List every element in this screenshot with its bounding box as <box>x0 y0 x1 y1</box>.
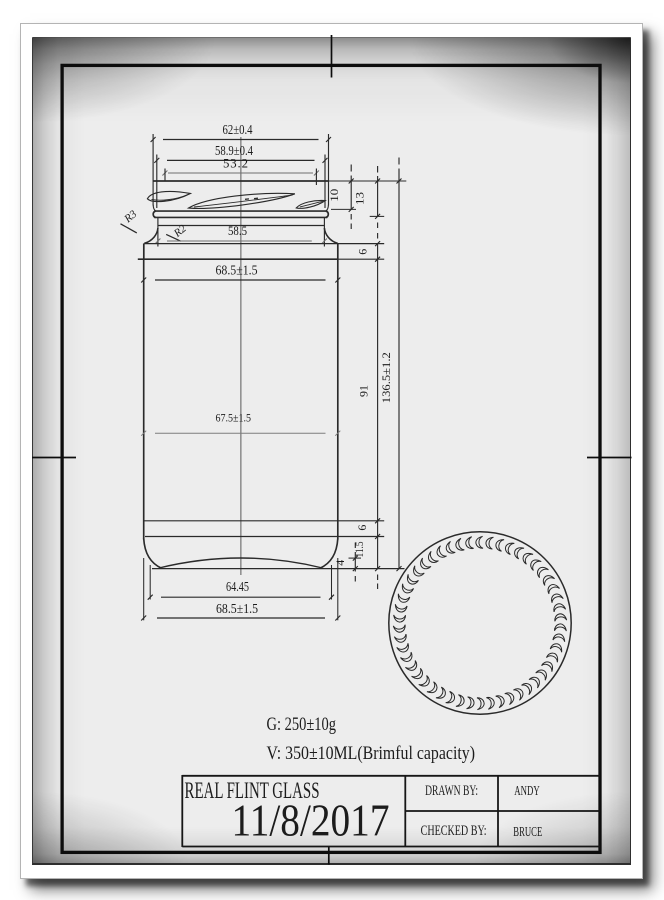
svg-text:13: 13 <box>354 192 366 205</box>
svg-text:68.5±1.5: 68.5±1.5 <box>216 601 258 616</box>
svg-text:136.5±1.2: 136.5±1.2 <box>381 352 393 403</box>
svg-text:10: 10 <box>329 188 341 201</box>
svg-text:64.45: 64.45 <box>226 579 249 594</box>
svg-text:4: 4 <box>335 560 347 566</box>
svg-text:91: 91 <box>358 385 370 397</box>
svg-text:67.5±1.5: 67.5±1.5 <box>216 410 252 424</box>
svg-text:DRAWN BY:: DRAWN BY: <box>425 783 478 799</box>
svg-text:6: 6 <box>357 524 369 530</box>
svg-text:68.5±1.5: 68.5±1.5 <box>216 263 258 278</box>
svg-text:BRUCE: BRUCE <box>513 824 542 839</box>
svg-text:CHECKED BY:: CHECKED BY: <box>421 823 487 839</box>
svg-text:58.9±0.4: 58.9±0.4 <box>215 143 253 158</box>
svg-text:11/8/2017: 11/8/2017 <box>232 796 390 846</box>
svg-text:G: 250±10g: G: 250±10g <box>267 714 337 735</box>
svg-text:53.2: 53.2 <box>223 157 248 171</box>
svg-text:6: 6 <box>357 249 369 255</box>
svg-text:58.5: 58.5 <box>228 224 247 238</box>
svg-text:R3: R3 <box>121 208 139 226</box>
svg-text:ANDY: ANDY <box>514 783 539 798</box>
svg-text:62±0.4: 62±0.4 <box>223 122 253 137</box>
svg-text:V: 350±10ML(Brimful capacity): V: 350±10ML(Brimful capacity) <box>267 743 476 764</box>
